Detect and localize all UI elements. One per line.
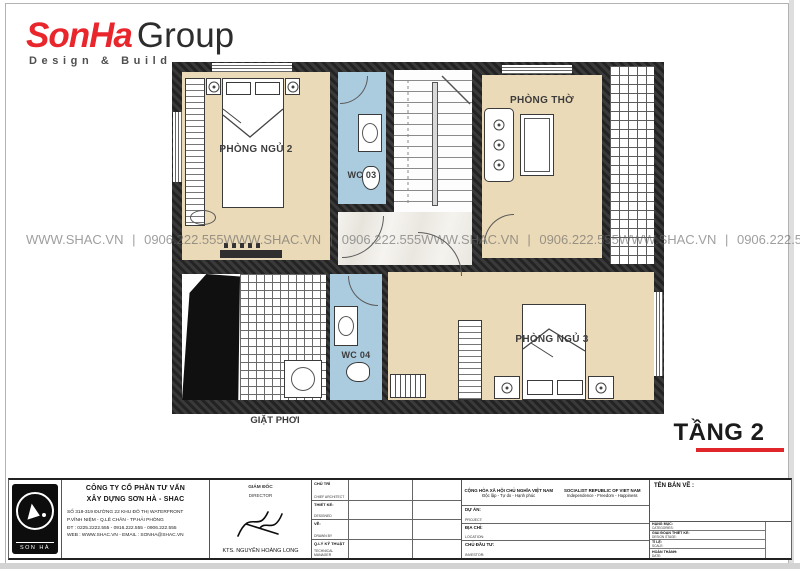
field-en: DESIGN STAGE: bbox=[652, 535, 763, 539]
investor-label-en: INVESTOR: bbox=[465, 553, 646, 557]
company-web-line: WEB : WWW.SHAC.VN - EMAIL : SONHA@SHAC.V… bbox=[67, 532, 204, 540]
field-side-column bbox=[765, 522, 791, 558]
company-address-line1: SỐ 318-319 ĐƯỜNG 22 KHU ĐÔ THỊ WATERFRON… bbox=[67, 509, 204, 517]
lamp-icon bbox=[596, 382, 607, 393]
company-address: SỐ 318-319 ĐƯỜNG 22 KHU ĐÔ THỊ WATERFRON… bbox=[67, 509, 204, 541]
stair-break-line bbox=[394, 70, 472, 214]
label-laundry: GIẶT PHƠI bbox=[205, 415, 345, 426]
roles-grid: CHỦ TRÌ CHIEF ARCHITECT THIẾT KẾ: DESIGN… bbox=[311, 480, 461, 558]
logo-brand-text: SonHa bbox=[26, 16, 132, 55]
role-vi: VẼ: bbox=[314, 521, 346, 526]
project-label-vi: DỰ ÁN: bbox=[465, 507, 646, 512]
drawing-fields: HẠNG MỤC: CATEGORIES: GIAI ĐOẠN THIẾT KẾ… bbox=[650, 522, 791, 558]
role-cell: THIẾT KẾ: DESIGNED bbox=[312, 500, 348, 520]
label-bedroom2: PHÒNG NGỦ 2 bbox=[182, 144, 330, 155]
radiator-unit bbox=[390, 374, 426, 398]
sonha-logo-icon bbox=[16, 492, 54, 530]
role-extra-cell bbox=[412, 539, 462, 559]
director-cell: GIÁM ĐỐC DIRECTOR KTS. NGUYỄN HOÀNG LONG bbox=[209, 480, 311, 558]
logo-suffix-text: Group bbox=[137, 16, 234, 55]
window-top-worship bbox=[502, 65, 572, 74]
role-value-cell bbox=[348, 500, 412, 520]
lamp-icon bbox=[208, 81, 219, 92]
altar-item-icon bbox=[494, 140, 505, 151]
location-label-en: LOCATION: bbox=[465, 535, 646, 539]
field-en: DATE: bbox=[652, 554, 763, 558]
republic-project-cell: CỘNG HÒA XÃ HỘI CHỦ NGHĨA VIỆT NAM Độc l… bbox=[461, 480, 649, 558]
director-label-vi: GIÁM ĐỐC bbox=[248, 484, 273, 492]
label-worship: PHÒNG THỜ bbox=[482, 95, 602, 106]
staircase bbox=[394, 70, 472, 214]
label-bedroom3: PHÒNG NGỦ 3 bbox=[472, 334, 632, 345]
logo-triangle-icon bbox=[23, 502, 40, 519]
role-en: TECHNICAL MANAGER bbox=[314, 549, 346, 557]
company-info-cell: CÔNG TY CỔ PHẦN TƯ VẤN XÂY DỰNG SƠN HÀ -… bbox=[61, 480, 209, 558]
title-block-logo-cell: SON HÀ bbox=[9, 480, 61, 558]
altar-table-inner bbox=[524, 118, 550, 172]
desk-bedroom2 bbox=[220, 250, 282, 258]
field-cell: HẠNG MỤC: CATEGORIES: bbox=[650, 522, 765, 531]
role-extra-cell bbox=[412, 480, 462, 500]
republic-header: CỘNG HÒA XÃ HỘI CHỦ NGHĨA VIỆT NAM Độc l… bbox=[462, 480, 649, 506]
role-extra-cell bbox=[412, 519, 462, 539]
window-left-bedroom2 bbox=[173, 112, 182, 182]
rug bbox=[190, 210, 216, 225]
location-row: ĐỊA CHỈ: LOCATION: bbox=[462, 524, 649, 542]
company-address-line2: P.VĨNH NIỆM - Q.LÊ CHÂN - TP.HẢI PHÒNG bbox=[67, 517, 204, 525]
sonha-logo-text: SON HÀ bbox=[16, 542, 54, 551]
investor-row: CHỦ ĐẦU TƯ: INVESTOR: bbox=[462, 541, 649, 558]
role-cell: Q.LÝ KỸ THUẬT TECHNICAL MANAGER bbox=[312, 539, 348, 559]
director-label: GIÁM ĐỐC DIRECTOR bbox=[248, 484, 273, 499]
washbasin-wc04 bbox=[334, 306, 358, 346]
company-name-line2: XÂY DỰNG SƠN HÀ - SHAC bbox=[67, 495, 204, 506]
director-label-en: DIRECTOR bbox=[249, 493, 272, 498]
architect-name: KTS. NGUYỄN HOÀNG LONG bbox=[222, 548, 298, 554]
washing-machine bbox=[284, 360, 322, 398]
role-vi: CHỦ TRÌ bbox=[314, 481, 346, 486]
investor-label-vi: CHỦ ĐẦU TƯ: bbox=[465, 542, 646, 547]
field-cell: TỈ LỆ: SCALE: bbox=[650, 540, 765, 549]
role-cell: VẼ: DRAWN BY bbox=[312, 519, 348, 539]
sheet-title: TẦNG 2 bbox=[648, 419, 790, 452]
nightstand bbox=[206, 78, 221, 95]
blanket-fold bbox=[523, 305, 587, 401]
republic-vi-line2: Độc lập - Tự do - Hạnh phúc bbox=[482, 493, 535, 498]
toilet-wc04 bbox=[346, 362, 370, 382]
republic-en: SOCIALIST REPUBLIC OF VIET NAM Independe… bbox=[556, 480, 650, 505]
altar-item-icon bbox=[494, 119, 505, 130]
role-extra-cell bbox=[412, 500, 462, 520]
republic-en-line2: Independence - Freedom - Happiness bbox=[567, 493, 638, 498]
role-value-cell bbox=[348, 519, 412, 539]
company-phone-line: ĐT : 0225.2222.555 - 0916.222.555 - 0906… bbox=[67, 525, 204, 533]
role-en: CHIEF ARCHITECT bbox=[314, 495, 346, 499]
basin-icon bbox=[338, 316, 354, 336]
role-value-cell bbox=[348, 539, 412, 559]
desk-items bbox=[224, 243, 262, 248]
sheet-title-text: TẦNG 2 bbox=[648, 419, 790, 447]
location-label-vi: ĐỊA CHỈ: bbox=[465, 525, 646, 530]
nightstand bbox=[285, 78, 300, 95]
role-cell: CHỦ TRÌ CHIEF ARCHITECT bbox=[312, 480, 348, 500]
role-vi: Q.LÝ KỸ THUẬT bbox=[314, 541, 346, 546]
company-logo: SonHaGroup Design & Build bbox=[26, 18, 234, 67]
basin-icon bbox=[362, 123, 378, 143]
role-en: DESIGNED bbox=[314, 514, 346, 518]
drawing-sheet: { "header": { "logo": { "brand": "SonHa"… bbox=[0, 0, 800, 569]
void-shape bbox=[182, 274, 240, 400]
signature-icon bbox=[230, 506, 292, 540]
drawing-name-cell: TÊN BẢN VẼ : HẠNG MỤC: CATEGORIES: GIAI … bbox=[649, 480, 791, 558]
label-wc04: WC 04 bbox=[330, 350, 382, 360]
title-block: SON HÀ CÔNG TY CỔ PHẦN TƯ VẤN XÂY DỰNG S… bbox=[8, 478, 792, 560]
republic-vi: CỘNG HÒA XÃ HỘI CHỦ NGHĨA VIỆT NAM Độc l… bbox=[462, 480, 556, 505]
bed-bedroom2 bbox=[222, 78, 284, 208]
role-vi: THIẾT KẾ: bbox=[314, 502, 346, 507]
role-value-cell bbox=[348, 480, 412, 500]
washbasin-wc03 bbox=[358, 114, 382, 152]
lamp-icon bbox=[287, 81, 298, 92]
altar-cabinet bbox=[484, 108, 514, 182]
project-row: DỰ ÁN: PROJECT: bbox=[462, 506, 649, 524]
sheet-edge-bottom bbox=[0, 563, 800, 569]
field-cell: HOÀN THÀNH: DATE: bbox=[650, 549, 765, 558]
role-en: DRAWN BY bbox=[314, 534, 346, 538]
logo-dot-icon bbox=[42, 513, 46, 517]
project-label-en: PROJECT: bbox=[465, 518, 646, 522]
washer-drum-icon bbox=[291, 367, 315, 391]
nightstand bbox=[494, 376, 520, 399]
window-right-bedroom3 bbox=[654, 292, 663, 376]
field-en: CATEGORIES: bbox=[652, 526, 763, 530]
altar-table bbox=[520, 114, 554, 176]
floor-plan: PHÒNG NGỦ 2 WC 03 PHÒNG THỜ WC 04 PHÒNG … bbox=[172, 62, 664, 414]
label-wc03: WC 03 bbox=[338, 170, 386, 180]
shelf-bedroom3 bbox=[458, 320, 482, 400]
void-area bbox=[182, 274, 240, 400]
bed-bedroom3 bbox=[522, 304, 586, 400]
sheet-title-underline bbox=[696, 448, 784, 452]
balcony bbox=[610, 66, 654, 264]
field-cell: GIAI ĐOẠN THIẾT KẾ: DESIGN STAGE: bbox=[650, 531, 765, 540]
company-name-line1: CÔNG TY CỔ PHẦN TƯ VẤN bbox=[67, 484, 204, 495]
window-top-bedroom2 bbox=[212, 63, 292, 72]
drawing-name-label: TÊN BẢN VẼ : bbox=[650, 480, 791, 522]
nightstand bbox=[588, 376, 614, 399]
logo-wordmark: SonHaGroup bbox=[26, 18, 234, 53]
altar-item-icon bbox=[494, 160, 505, 171]
field-en: SCALE: bbox=[652, 544, 763, 548]
sonha-logo-box: SON HÀ bbox=[12, 484, 58, 554]
lamp-icon bbox=[502, 382, 513, 393]
